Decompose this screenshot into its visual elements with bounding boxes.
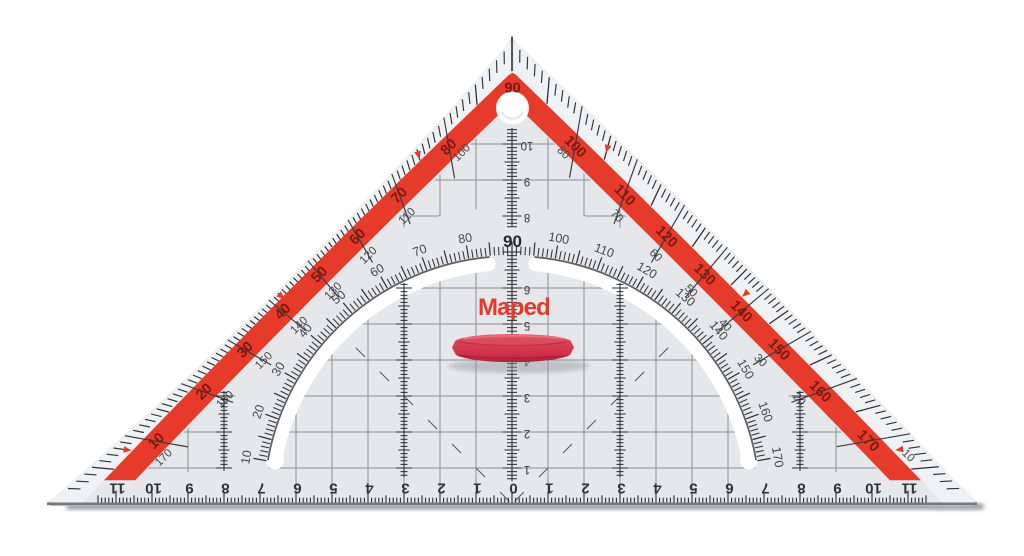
svg-text:3: 3 bbox=[617, 480, 625, 497]
svg-text:2: 2 bbox=[437, 480, 445, 497]
svg-text:6: 6 bbox=[725, 480, 733, 497]
svg-text:1: 1 bbox=[524, 463, 530, 475]
svg-text:10: 10 bbox=[865, 480, 882, 497]
svg-text:8: 8 bbox=[797, 480, 805, 497]
svg-text:5: 5 bbox=[689, 480, 697, 497]
svg-text:9: 9 bbox=[833, 480, 841, 497]
svg-text:11: 11 bbox=[902, 480, 918, 497]
svg-text:7: 7 bbox=[257, 480, 265, 497]
svg-text:9: 9 bbox=[185, 480, 193, 497]
svg-text:2: 2 bbox=[581, 480, 589, 497]
svg-text:5: 5 bbox=[329, 480, 337, 497]
svg-text:80: 80 bbox=[457, 230, 473, 246]
svg-text:1: 1 bbox=[473, 480, 481, 497]
svg-text:8: 8 bbox=[221, 480, 229, 497]
svg-text:4: 4 bbox=[653, 480, 662, 497]
svg-text:11: 11 bbox=[110, 480, 126, 497]
svg-text:90: 90 bbox=[505, 81, 521, 97]
svg-text:7: 7 bbox=[761, 480, 769, 497]
svg-text:1: 1 bbox=[545, 480, 553, 497]
svg-text:2: 2 bbox=[524, 427, 530, 439]
svg-text:90: 90 bbox=[503, 232, 522, 251]
svg-text:6: 6 bbox=[293, 480, 301, 497]
svg-text:10: 10 bbox=[238, 449, 254, 465]
svg-text:0: 0 bbox=[509, 480, 517, 497]
svg-text:3: 3 bbox=[401, 480, 409, 497]
svg-text:10: 10 bbox=[521, 139, 534, 151]
svg-text:Maped: Maped bbox=[478, 294, 550, 321]
svg-text:4: 4 bbox=[365, 480, 374, 497]
svg-text:9: 9 bbox=[524, 175, 530, 187]
svg-text:3: 3 bbox=[524, 391, 530, 403]
svg-text:8: 8 bbox=[524, 211, 530, 223]
svg-text:10: 10 bbox=[145, 480, 162, 497]
